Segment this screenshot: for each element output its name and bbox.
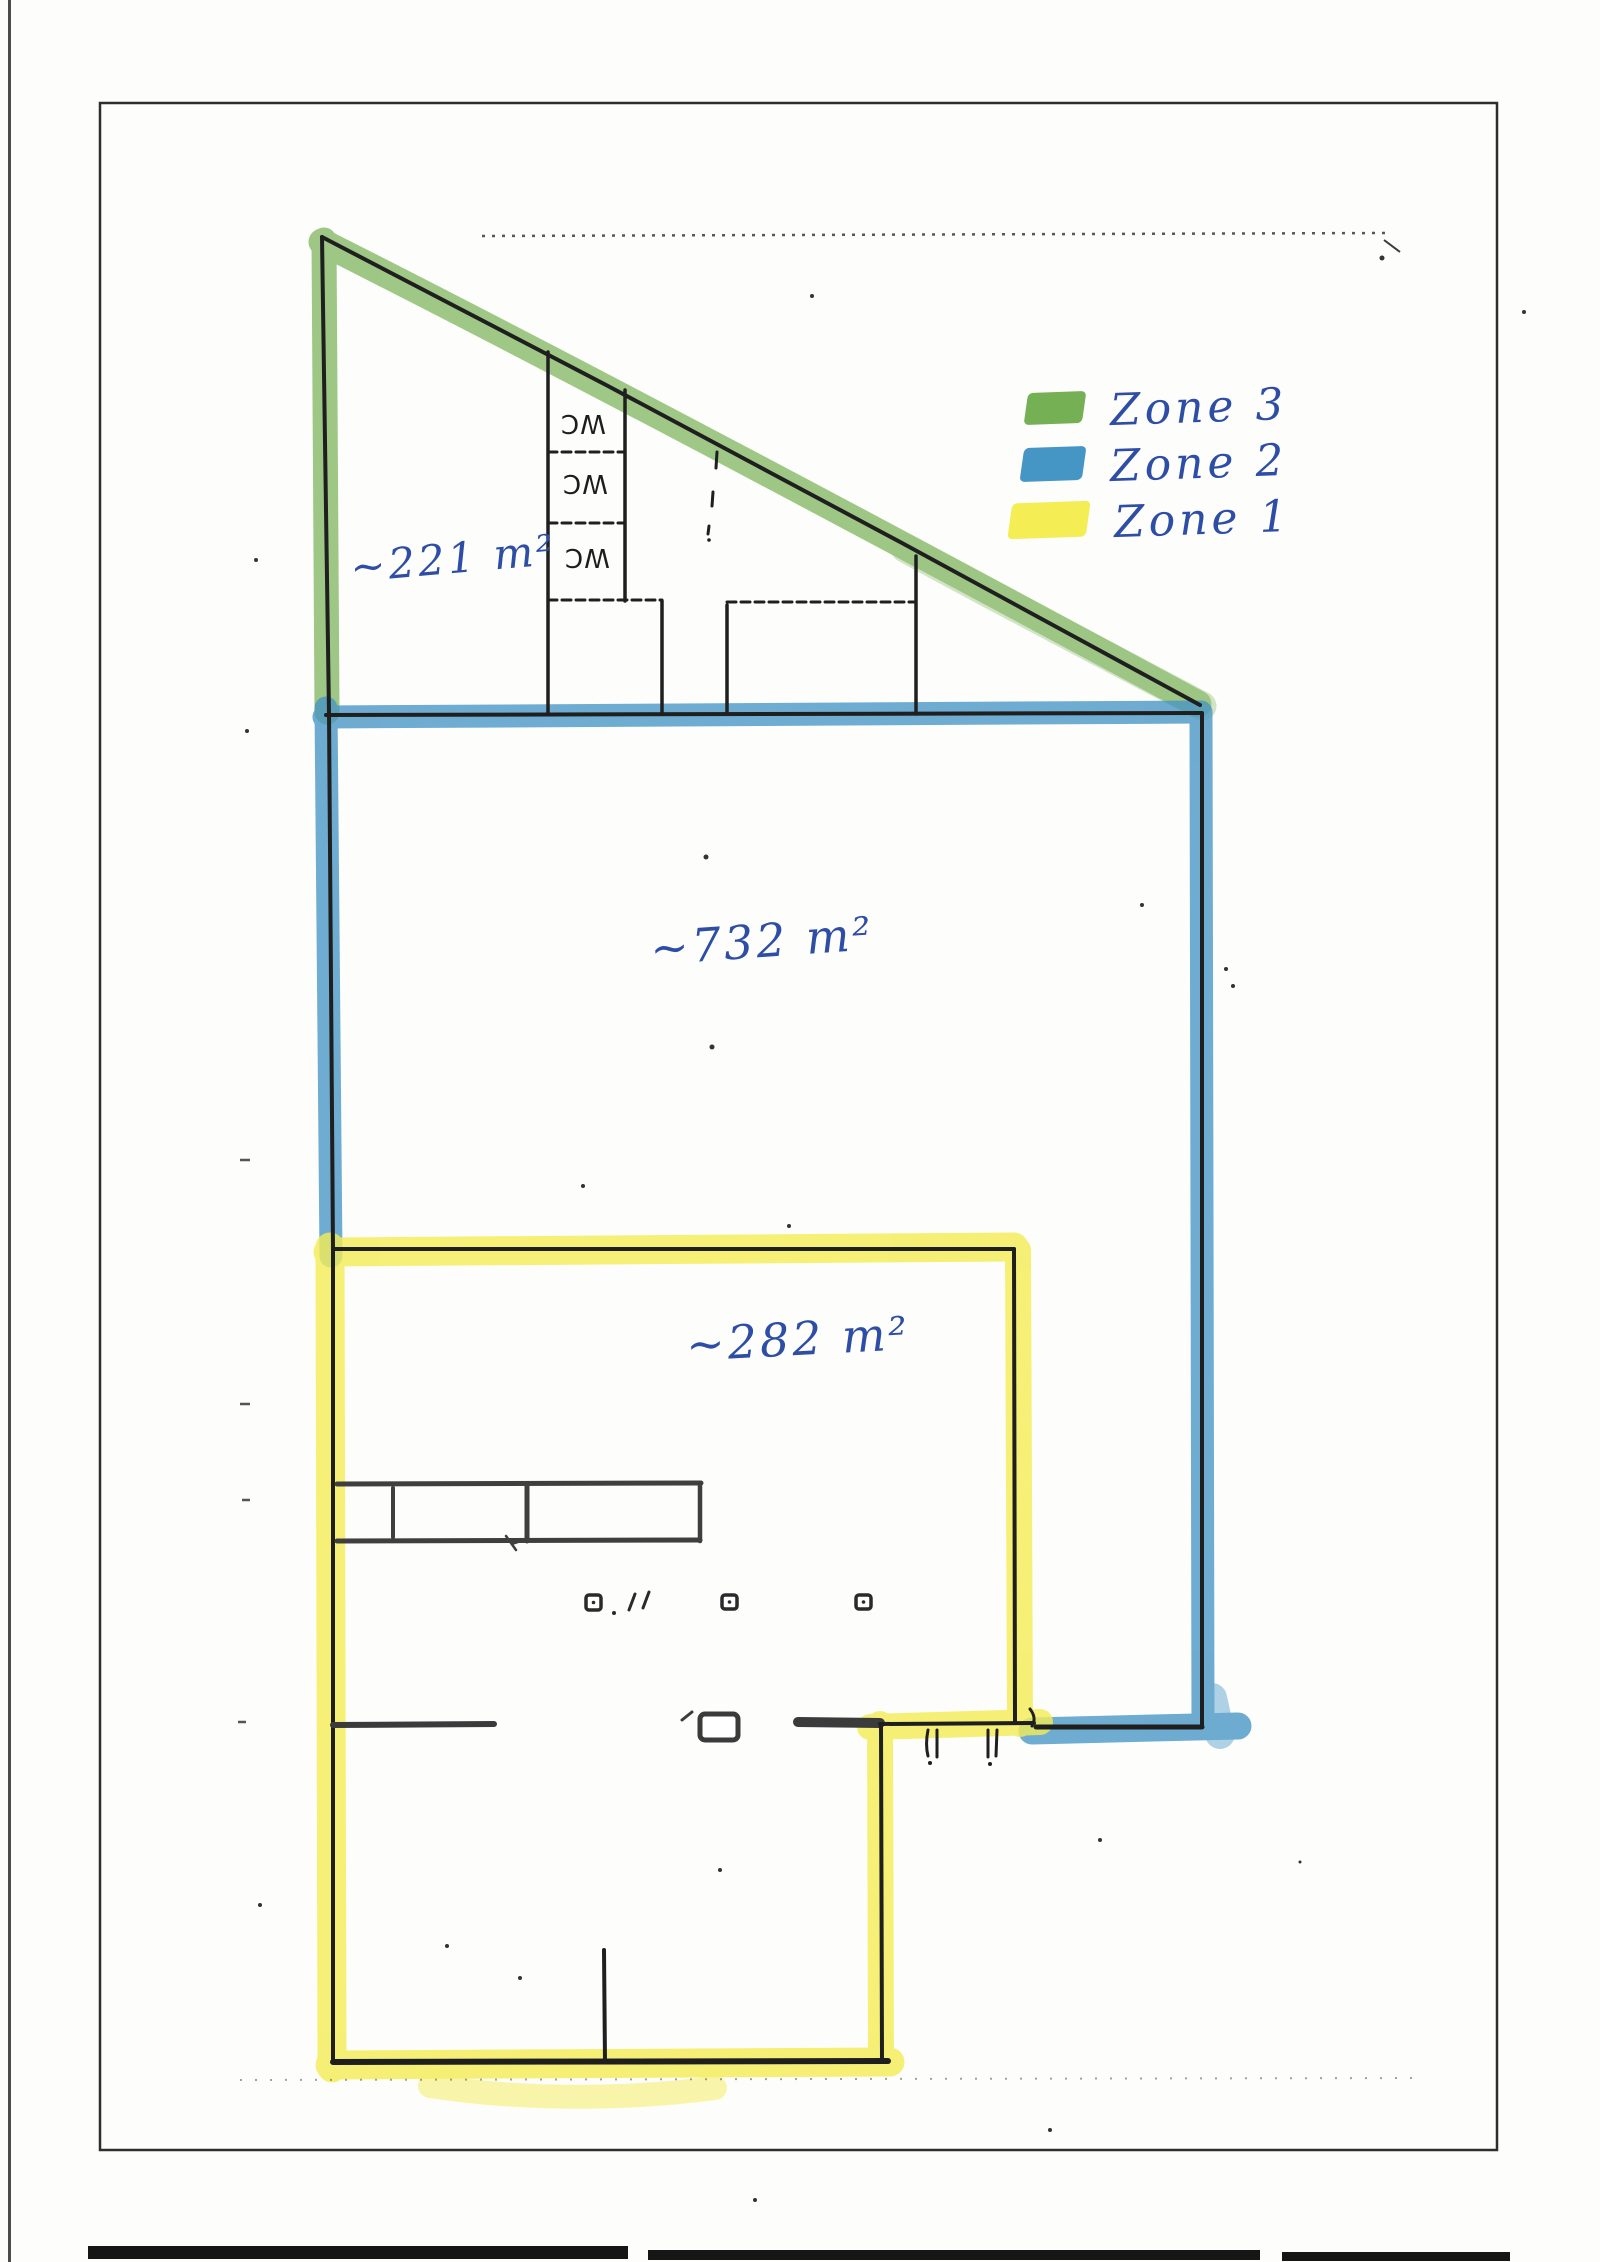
wc-room-label: WC [560, 408, 606, 438]
sink-icon [682, 1712, 738, 1740]
cabinet-block [337, 1483, 701, 1550]
zone2-legend-label: Zone 2 [1109, 439, 1288, 489]
zone2-blue-highlight [324, 708, 1238, 1734]
zone1-area-annotation: ~282 m² [685, 1310, 911, 1368]
legend-row-zone2: Zone 2 [1022, 442, 1287, 486]
zone1-legend-label: Zone 1 [1113, 495, 1292, 545]
zone2-area-annotation: ~732 m² [649, 910, 876, 972]
socket-icons [586, 1592, 871, 1615]
dotted-boundary-line [482, 233, 1400, 252]
scanned-floor-plan-page: Zone 3 Zone 2 Zone 1 ~221 m² ~732 m² ~28… [0, 0, 1600, 2262]
wc-room-label: WC [562, 468, 608, 498]
scan-edge-artifact [648, 2250, 1260, 2260]
scan-edge-artifact [1282, 2252, 1510, 2261]
scan-edge-artifact [88, 2246, 628, 2259]
floor-plan-drawing [0, 0, 1600, 2262]
wc-room-label: WC [564, 542, 610, 572]
zone3-color-swatch [1024, 391, 1087, 425]
legend-row-zone3: Zone 3 [1026, 386, 1287, 430]
zone1-yellow-highlight [328, 1247, 1040, 2097]
zone3-legend-label: Zone 3 [1109, 383, 1288, 433]
zone2-color-swatch [1019, 446, 1086, 482]
legend-row-zone1: Zone 1 [1010, 498, 1291, 542]
zone1-color-swatch [1007, 501, 1091, 540]
